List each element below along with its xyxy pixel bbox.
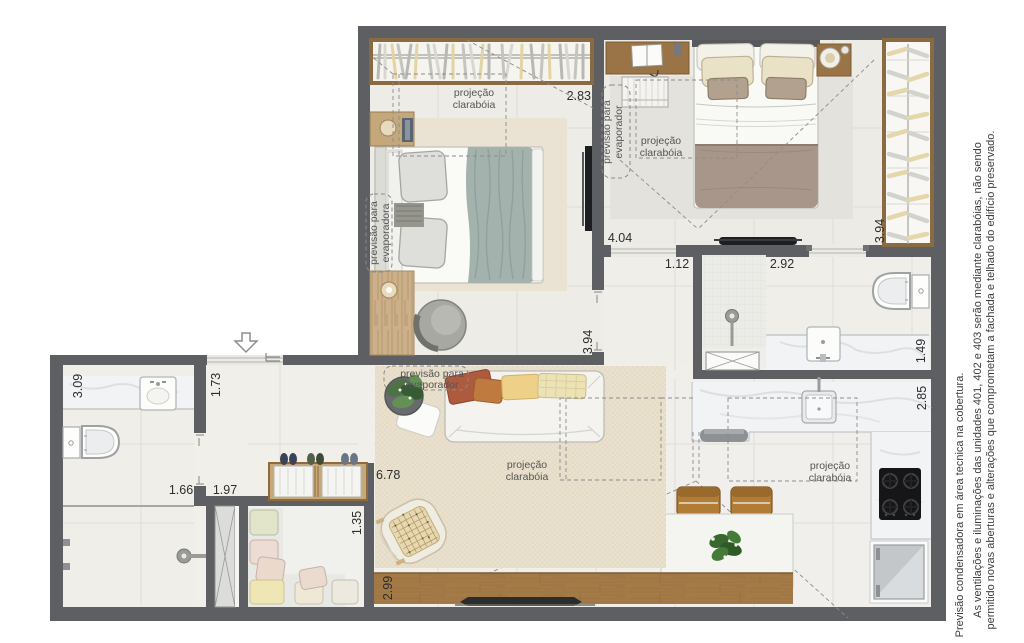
- svg-text:2.83: 2.83: [567, 89, 591, 103]
- svg-text:evaporador: evaporador: [405, 379, 459, 391]
- svg-text:1.97: 1.97: [213, 483, 237, 497]
- svg-text:clarabóia: clarabóia: [809, 472, 852, 484]
- svg-text:3.94: 3.94: [873, 219, 887, 243]
- svg-text:1.66: 1.66: [169, 483, 193, 497]
- svg-text:2.92: 2.92: [770, 257, 794, 271]
- svg-text:previsão para: previsão para: [368, 201, 380, 265]
- svg-text:evaporador: evaporador: [613, 105, 625, 159]
- svg-text:6.78: 6.78: [376, 468, 400, 482]
- svg-text:previsão para: previsão para: [601, 100, 613, 164]
- svg-text:clarabóia: clarabóia: [506, 471, 549, 483]
- svg-text:3.94: 3.94: [581, 330, 595, 354]
- svg-text:projeção: projeção: [641, 135, 681, 147]
- svg-text:projeção: projeção: [810, 460, 850, 472]
- svg-text:permitido novas aberturas e al: permitido novas aberturas e alterações q…: [985, 131, 997, 630]
- svg-text:1.35: 1.35: [350, 511, 364, 535]
- svg-text:Previsão condensadora em área: Previsão condensadora em área tecnica na…: [954, 373, 966, 638]
- svg-text:1.49: 1.49: [914, 339, 928, 363]
- svg-text:As ventilações e iluminações d: As ventilações e iluminações das unidade…: [972, 142, 984, 618]
- svg-text:projeção: projeção: [454, 87, 494, 99]
- svg-text:3.09: 3.09: [71, 374, 85, 398]
- svg-text:projeção: projeção: [507, 459, 547, 471]
- svg-text:1.73: 1.73: [209, 373, 223, 397]
- svg-text:4.04: 4.04: [608, 231, 632, 245]
- svg-text:2.85: 2.85: [915, 386, 929, 410]
- svg-text:1.12: 1.12: [665, 257, 689, 271]
- svg-text:clarabóia: clarabóia: [453, 99, 496, 111]
- svg-text:clarabóia: clarabóia: [640, 147, 683, 159]
- svg-text:evaporadora: evaporadora: [380, 203, 392, 262]
- svg-text:2.99: 2.99: [381, 576, 395, 600]
